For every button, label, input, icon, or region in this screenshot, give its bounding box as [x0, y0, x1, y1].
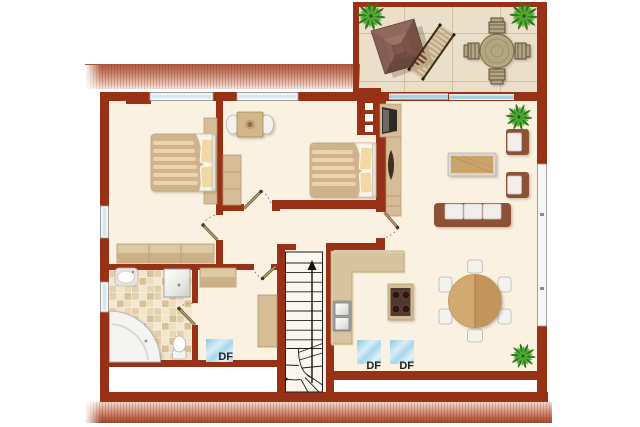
svg-text:DF: DF: [366, 360, 381, 372]
svg-text:DF: DF: [399, 360, 414, 372]
svg-text:DF: DF: [218, 351, 233, 363]
